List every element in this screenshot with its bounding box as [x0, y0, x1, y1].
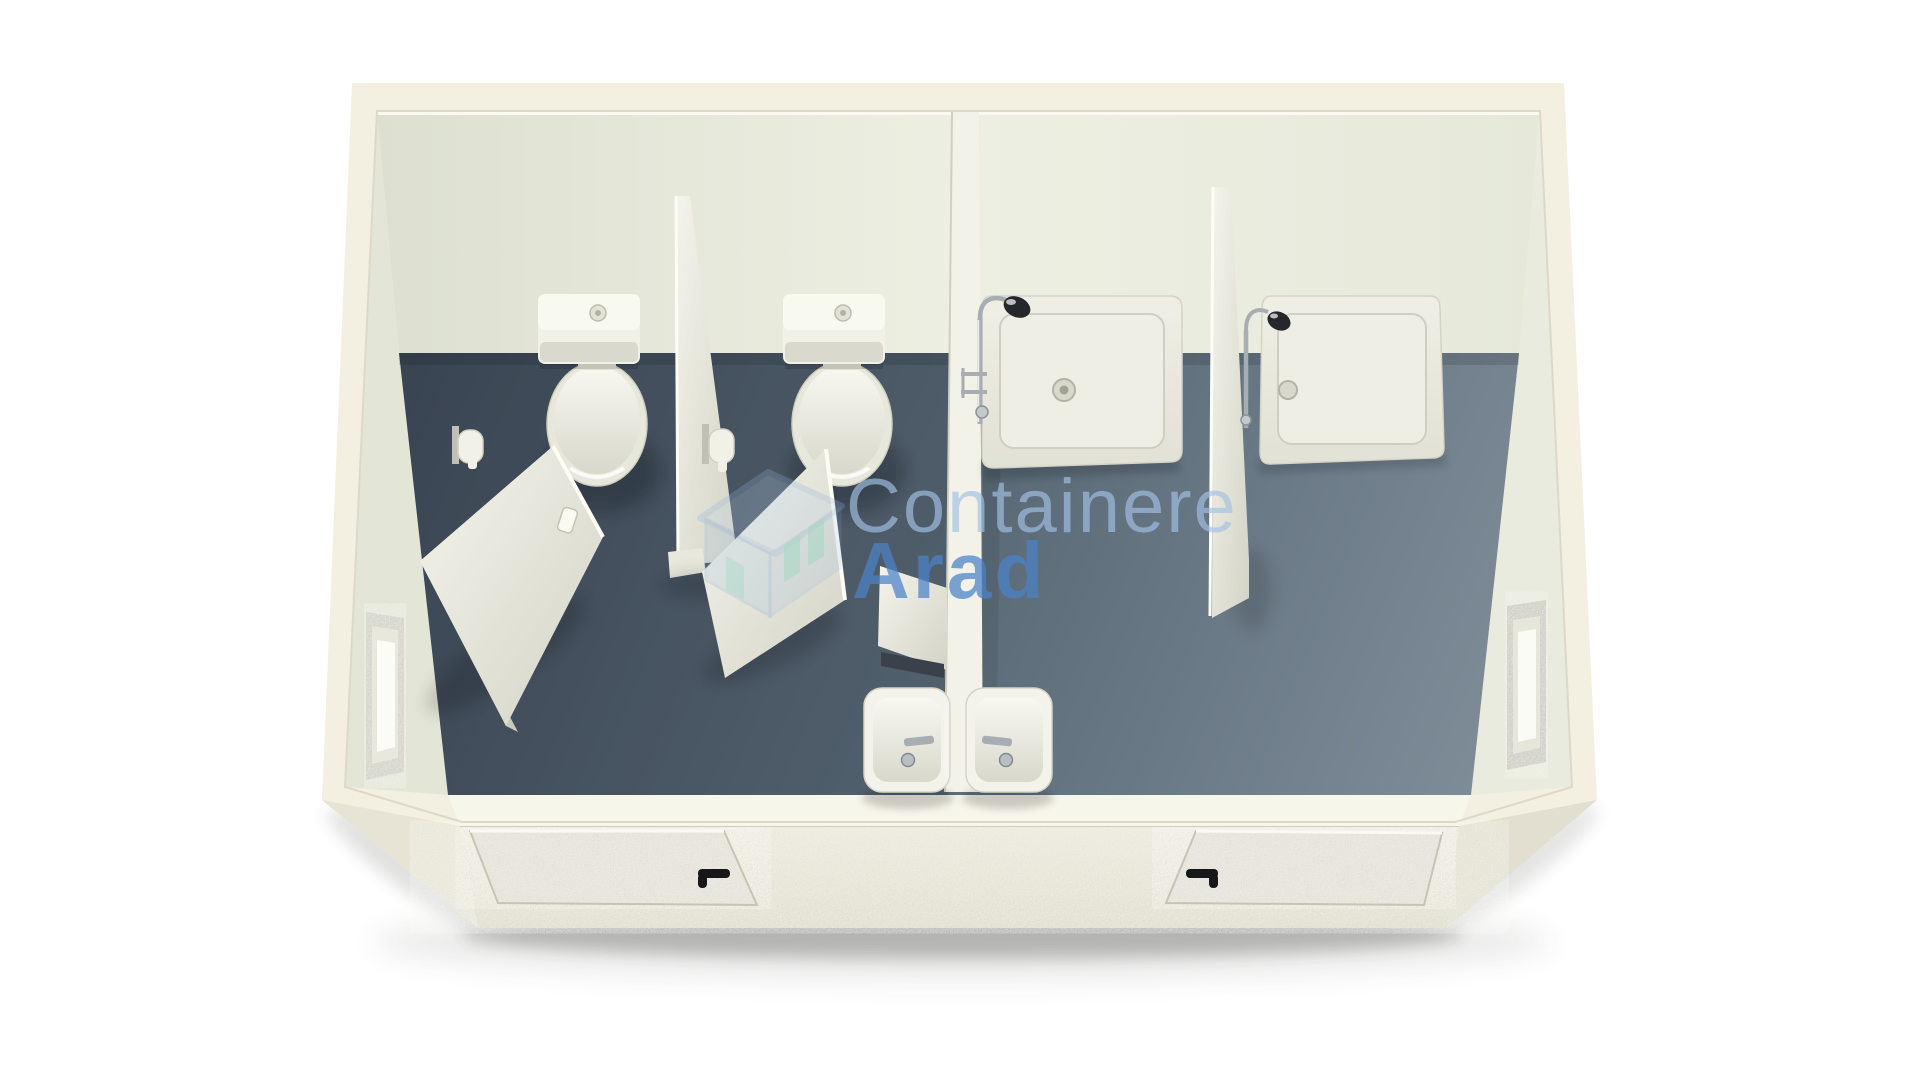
tray-basin [1000, 314, 1164, 448]
cistern-top [783, 294, 885, 330]
cistern-front-shade [540, 342, 638, 362]
flush-button-center [595, 310, 601, 316]
toilet-lid [799, 366, 885, 474]
flush-button-center [840, 310, 846, 316]
toilet-lid [554, 366, 640, 474]
shower-tray-1 [982, 296, 1182, 480]
window-left [366, 612, 404, 780]
cistern-front-shade [785, 342, 883, 362]
exterior-door-right [1166, 831, 1442, 905]
render-canvas: Containere Arad [0, 0, 1920, 1080]
washbasin-left [864, 688, 950, 792]
mixer-knob [976, 406, 988, 418]
washbasin-right [966, 688, 1052, 792]
watermark-brand-line2: Arad [852, 526, 1046, 615]
tray-basin [1278, 314, 1426, 444]
container-3d-render: Containere Arad [0, 0, 1920, 1080]
window-pane [377, 640, 395, 752]
window-pane [1518, 629, 1536, 742]
mixer-knob [1241, 415, 1251, 425]
faucet-knob [1000, 754, 1013, 767]
drain [1279, 381, 1297, 399]
window-right [1507, 600, 1546, 770]
faucet-knob [902, 754, 915, 767]
cistern-top [538, 294, 640, 330]
drain-center [1060, 386, 1069, 395]
head-highlight [1006, 299, 1016, 305]
exterior-door-left [470, 831, 757, 905]
head-highlight [1270, 314, 1278, 319]
door-top-bevel [1196, 831, 1442, 833]
